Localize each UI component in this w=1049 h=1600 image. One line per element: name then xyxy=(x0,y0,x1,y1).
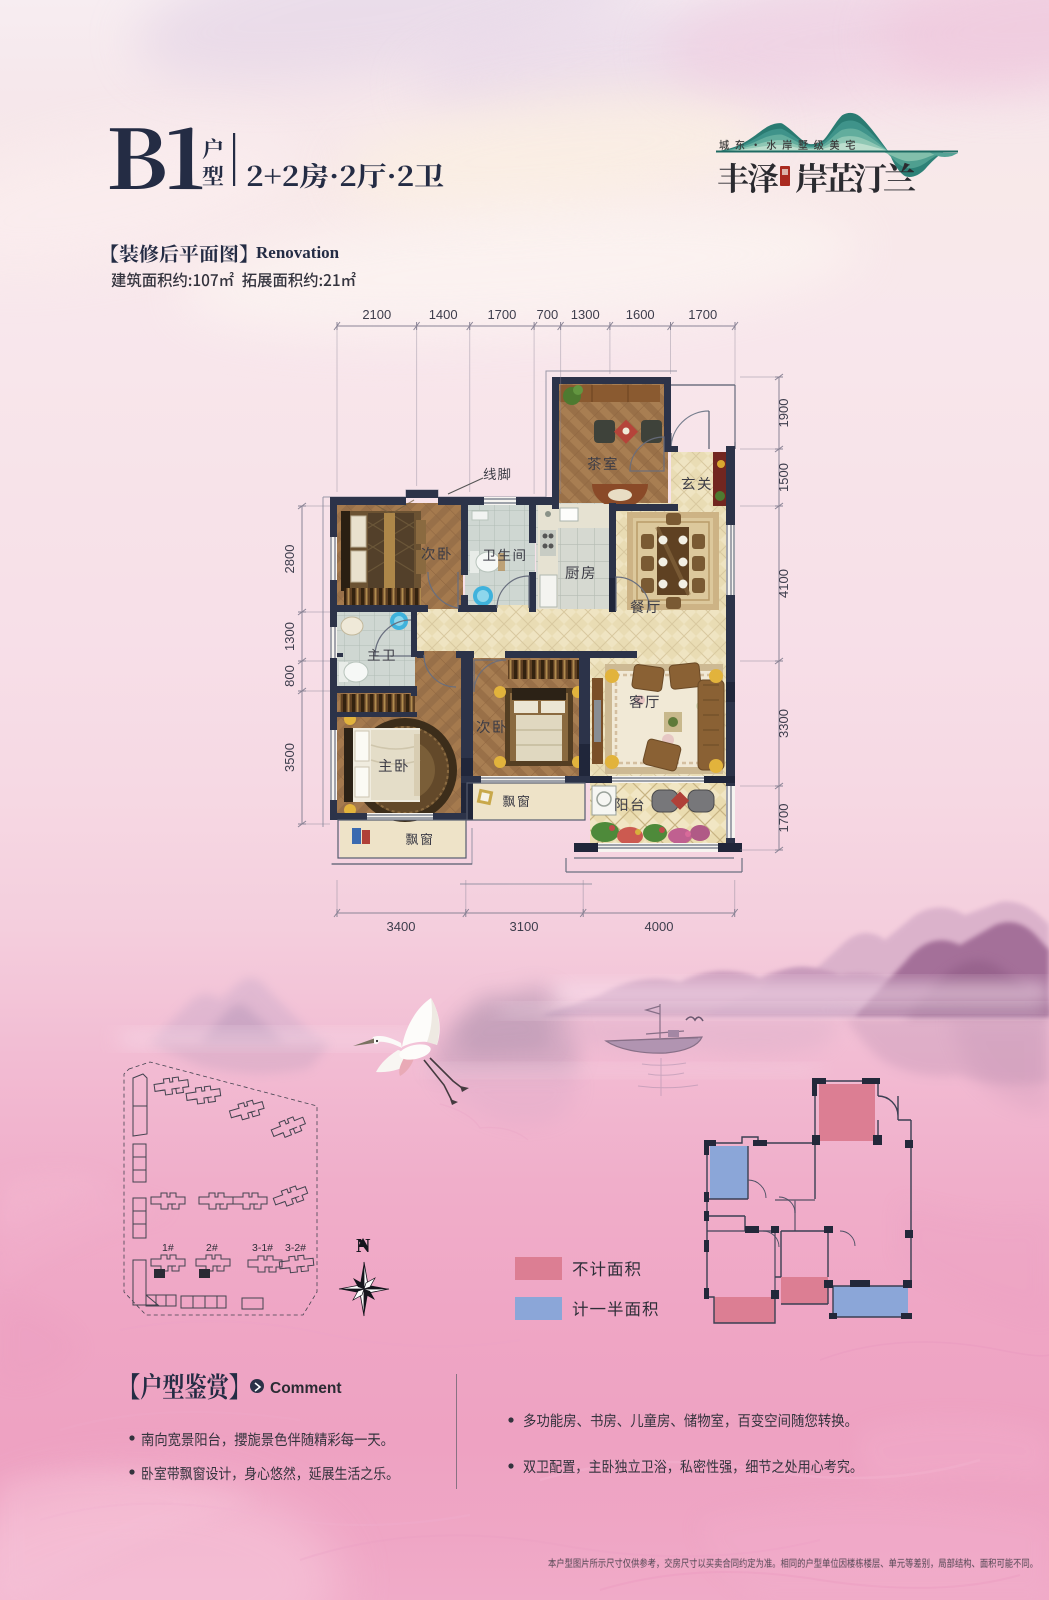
svg-text:3500: 3500 xyxy=(282,743,297,772)
svg-text:1600: 1600 xyxy=(626,307,655,322)
svg-text:Renovation: Renovation xyxy=(256,243,340,262)
svg-text:3400: 3400 xyxy=(387,919,416,934)
svg-text:4000: 4000 xyxy=(645,919,674,934)
svg-text:1300: 1300 xyxy=(571,307,600,322)
svg-text:3-2#: 3-2# xyxy=(285,1242,306,1254)
svg-text:Comment: Comment xyxy=(270,1380,341,1397)
svg-text:700: 700 xyxy=(536,307,558,322)
svg-text:1500: 1500 xyxy=(776,463,791,492)
svg-text:800: 800 xyxy=(282,665,297,687)
svg-text:1400: 1400 xyxy=(429,307,458,322)
svg-text:2100: 2100 xyxy=(362,307,391,322)
svg-text:1#: 1# xyxy=(162,1242,174,1254)
svg-text:3300: 3300 xyxy=(776,709,791,738)
svg-text:2#: 2# xyxy=(206,1242,218,1254)
svg-text:1900: 1900 xyxy=(776,399,791,428)
svg-text:3-1#: 3-1# xyxy=(252,1242,273,1254)
svg-text:1700: 1700 xyxy=(688,307,717,322)
svg-text:3100: 3100 xyxy=(510,919,539,934)
svg-text:1700: 1700 xyxy=(776,804,791,833)
svg-text:1300: 1300 xyxy=(282,622,297,651)
svg-text:1700: 1700 xyxy=(487,307,516,322)
svg-text:2800: 2800 xyxy=(282,545,297,574)
svg-text:4100: 4100 xyxy=(776,569,791,598)
